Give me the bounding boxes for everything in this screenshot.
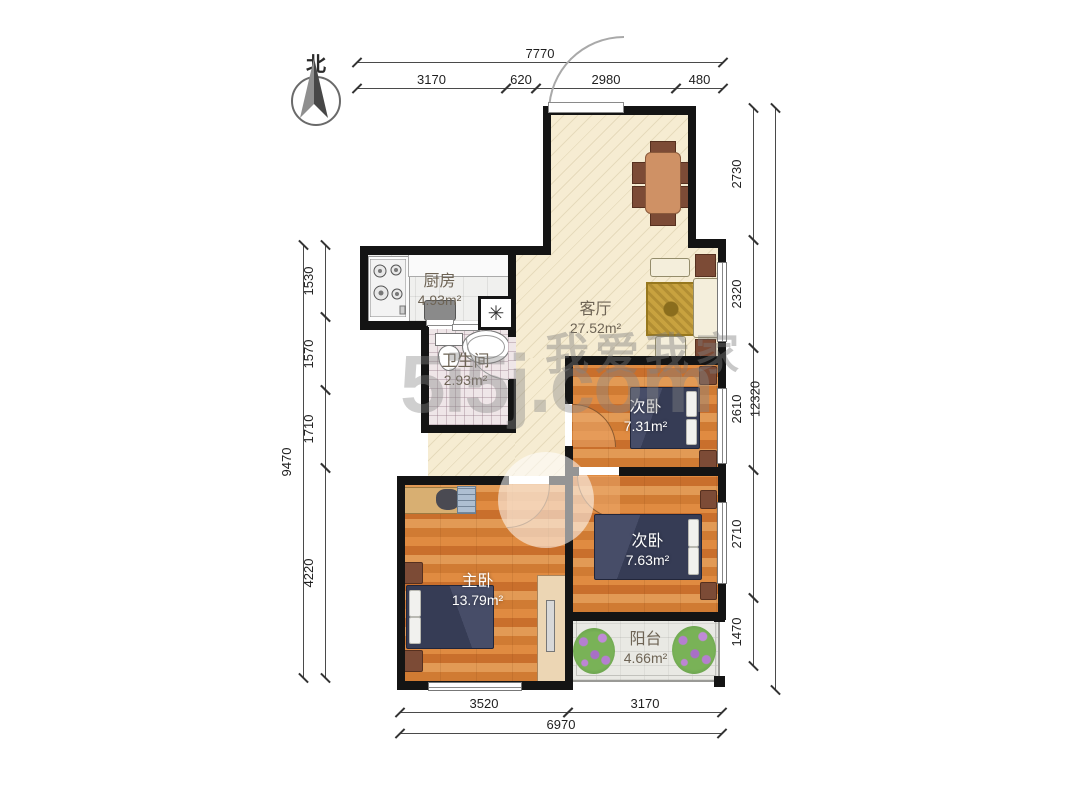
living-window (717, 262, 727, 342)
dim-left-seg3: 4220 (325, 468, 326, 678)
bathroom-area: 2.93m² (418, 372, 513, 390)
bathroom-label: 卫生间 2.93m² (418, 352, 513, 390)
dim-right-seg1: 2320 (753, 240, 754, 348)
bedroom2a-window (717, 388, 727, 464)
wall-segment (688, 106, 696, 248)
wall-segment (360, 246, 551, 255)
nightstand (700, 490, 717, 509)
balcony-area: 4.66m² (598, 650, 693, 668)
kitchen-sliding-door-panel (452, 324, 480, 331)
sofa (693, 278, 719, 338)
kitchen-sliding-door-panel (426, 319, 454, 326)
wall-segment (360, 321, 428, 330)
dim-right-seg4: 1470 (753, 598, 754, 666)
wall-segment (421, 425, 516, 433)
dim-bottom-seg1: 3170 (568, 712, 722, 713)
master-label: 主卧 13.79m² (430, 572, 525, 610)
wall-segment (543, 106, 551, 255)
dim-top-seg3: 480 (676, 88, 723, 89)
bedroom2b-label: 次卧 7.63m² (600, 532, 695, 570)
dim-top-seg0: 3170 (357, 88, 506, 89)
nightstand (403, 650, 423, 672)
balcony-label: 阳台 4.66m² (598, 630, 693, 668)
bathroom-name: 卫生间 (418, 352, 513, 372)
north-arrow-icon (296, 58, 332, 122)
kitchen-area: 4.93m² (392, 292, 487, 310)
wall-segment (565, 356, 573, 404)
master-name: 主卧 (430, 572, 525, 592)
hall-floor-strip (515, 358, 565, 476)
dim-left-seg0: 1530 (325, 245, 326, 317)
wall-segment (565, 356, 725, 365)
entry-door-leaf (548, 102, 624, 113)
living-rug (646, 282, 696, 336)
entry-door-arc (548, 36, 624, 112)
bedroom2b-name: 次卧 (600, 532, 695, 552)
dim-top-seg1: 620 (506, 88, 536, 89)
shaft-symbol: ✳ (488, 301, 505, 326)
bedroom2a-name: 次卧 (598, 398, 693, 418)
wall-segment (619, 467, 725, 476)
kitchen-name: 厨房 (392, 272, 487, 292)
dim-top-total: 7770 (357, 62, 723, 63)
bedroom2b-window (717, 502, 727, 584)
master-area: 13.79m² (430, 592, 525, 610)
wall-segment (565, 612, 725, 621)
balcony-name: 阳台 (598, 630, 693, 650)
nightstand (700, 582, 717, 600)
bedroom2b-area: 7.63m² (600, 552, 695, 570)
master-window (428, 682, 522, 691)
bedroom2a-area: 7.31m² (598, 418, 693, 436)
nightstand (403, 562, 423, 584)
living-area: 27.52m² (548, 320, 643, 338)
wall-segment (397, 476, 405, 690)
wardrobe-door-handle (546, 600, 555, 652)
kitchen-label: 厨房 4.93m² (392, 272, 487, 310)
dining-table (645, 152, 681, 214)
wall-segment (714, 612, 725, 622)
nightstand (699, 366, 717, 385)
dim-right-seg3: 2710 (753, 470, 754, 598)
wall-segment (549, 476, 567, 485)
loveseat (650, 258, 690, 277)
hall-floor-lower (428, 432, 515, 476)
dim-bottom-total: 6970 (400, 733, 722, 734)
side-table (695, 254, 716, 277)
bedroom2a-label: 次卧 7.31m² (598, 398, 693, 436)
floor-plan: 北 (0, 0, 1080, 810)
dim-left-seg2: 1710 (325, 390, 326, 468)
master-wardrobe (537, 575, 566, 682)
wall-segment (360, 246, 368, 330)
dim-bottom-seg0: 3520 (400, 712, 568, 713)
dim-right-total: 12320 (775, 108, 776, 690)
wall-segment (714, 676, 725, 687)
living-name: 客厅 (548, 300, 643, 320)
dim-left-total: 9470 (303, 245, 304, 678)
wall-segment (565, 467, 573, 690)
desk-shelf (457, 486, 476, 514)
dim-right-seg0: 2730 (753, 108, 754, 240)
wall-segment (397, 476, 509, 485)
dim-left-seg1: 1570 (325, 317, 326, 390)
living-label: 客厅 27.52m² (548, 300, 643, 338)
